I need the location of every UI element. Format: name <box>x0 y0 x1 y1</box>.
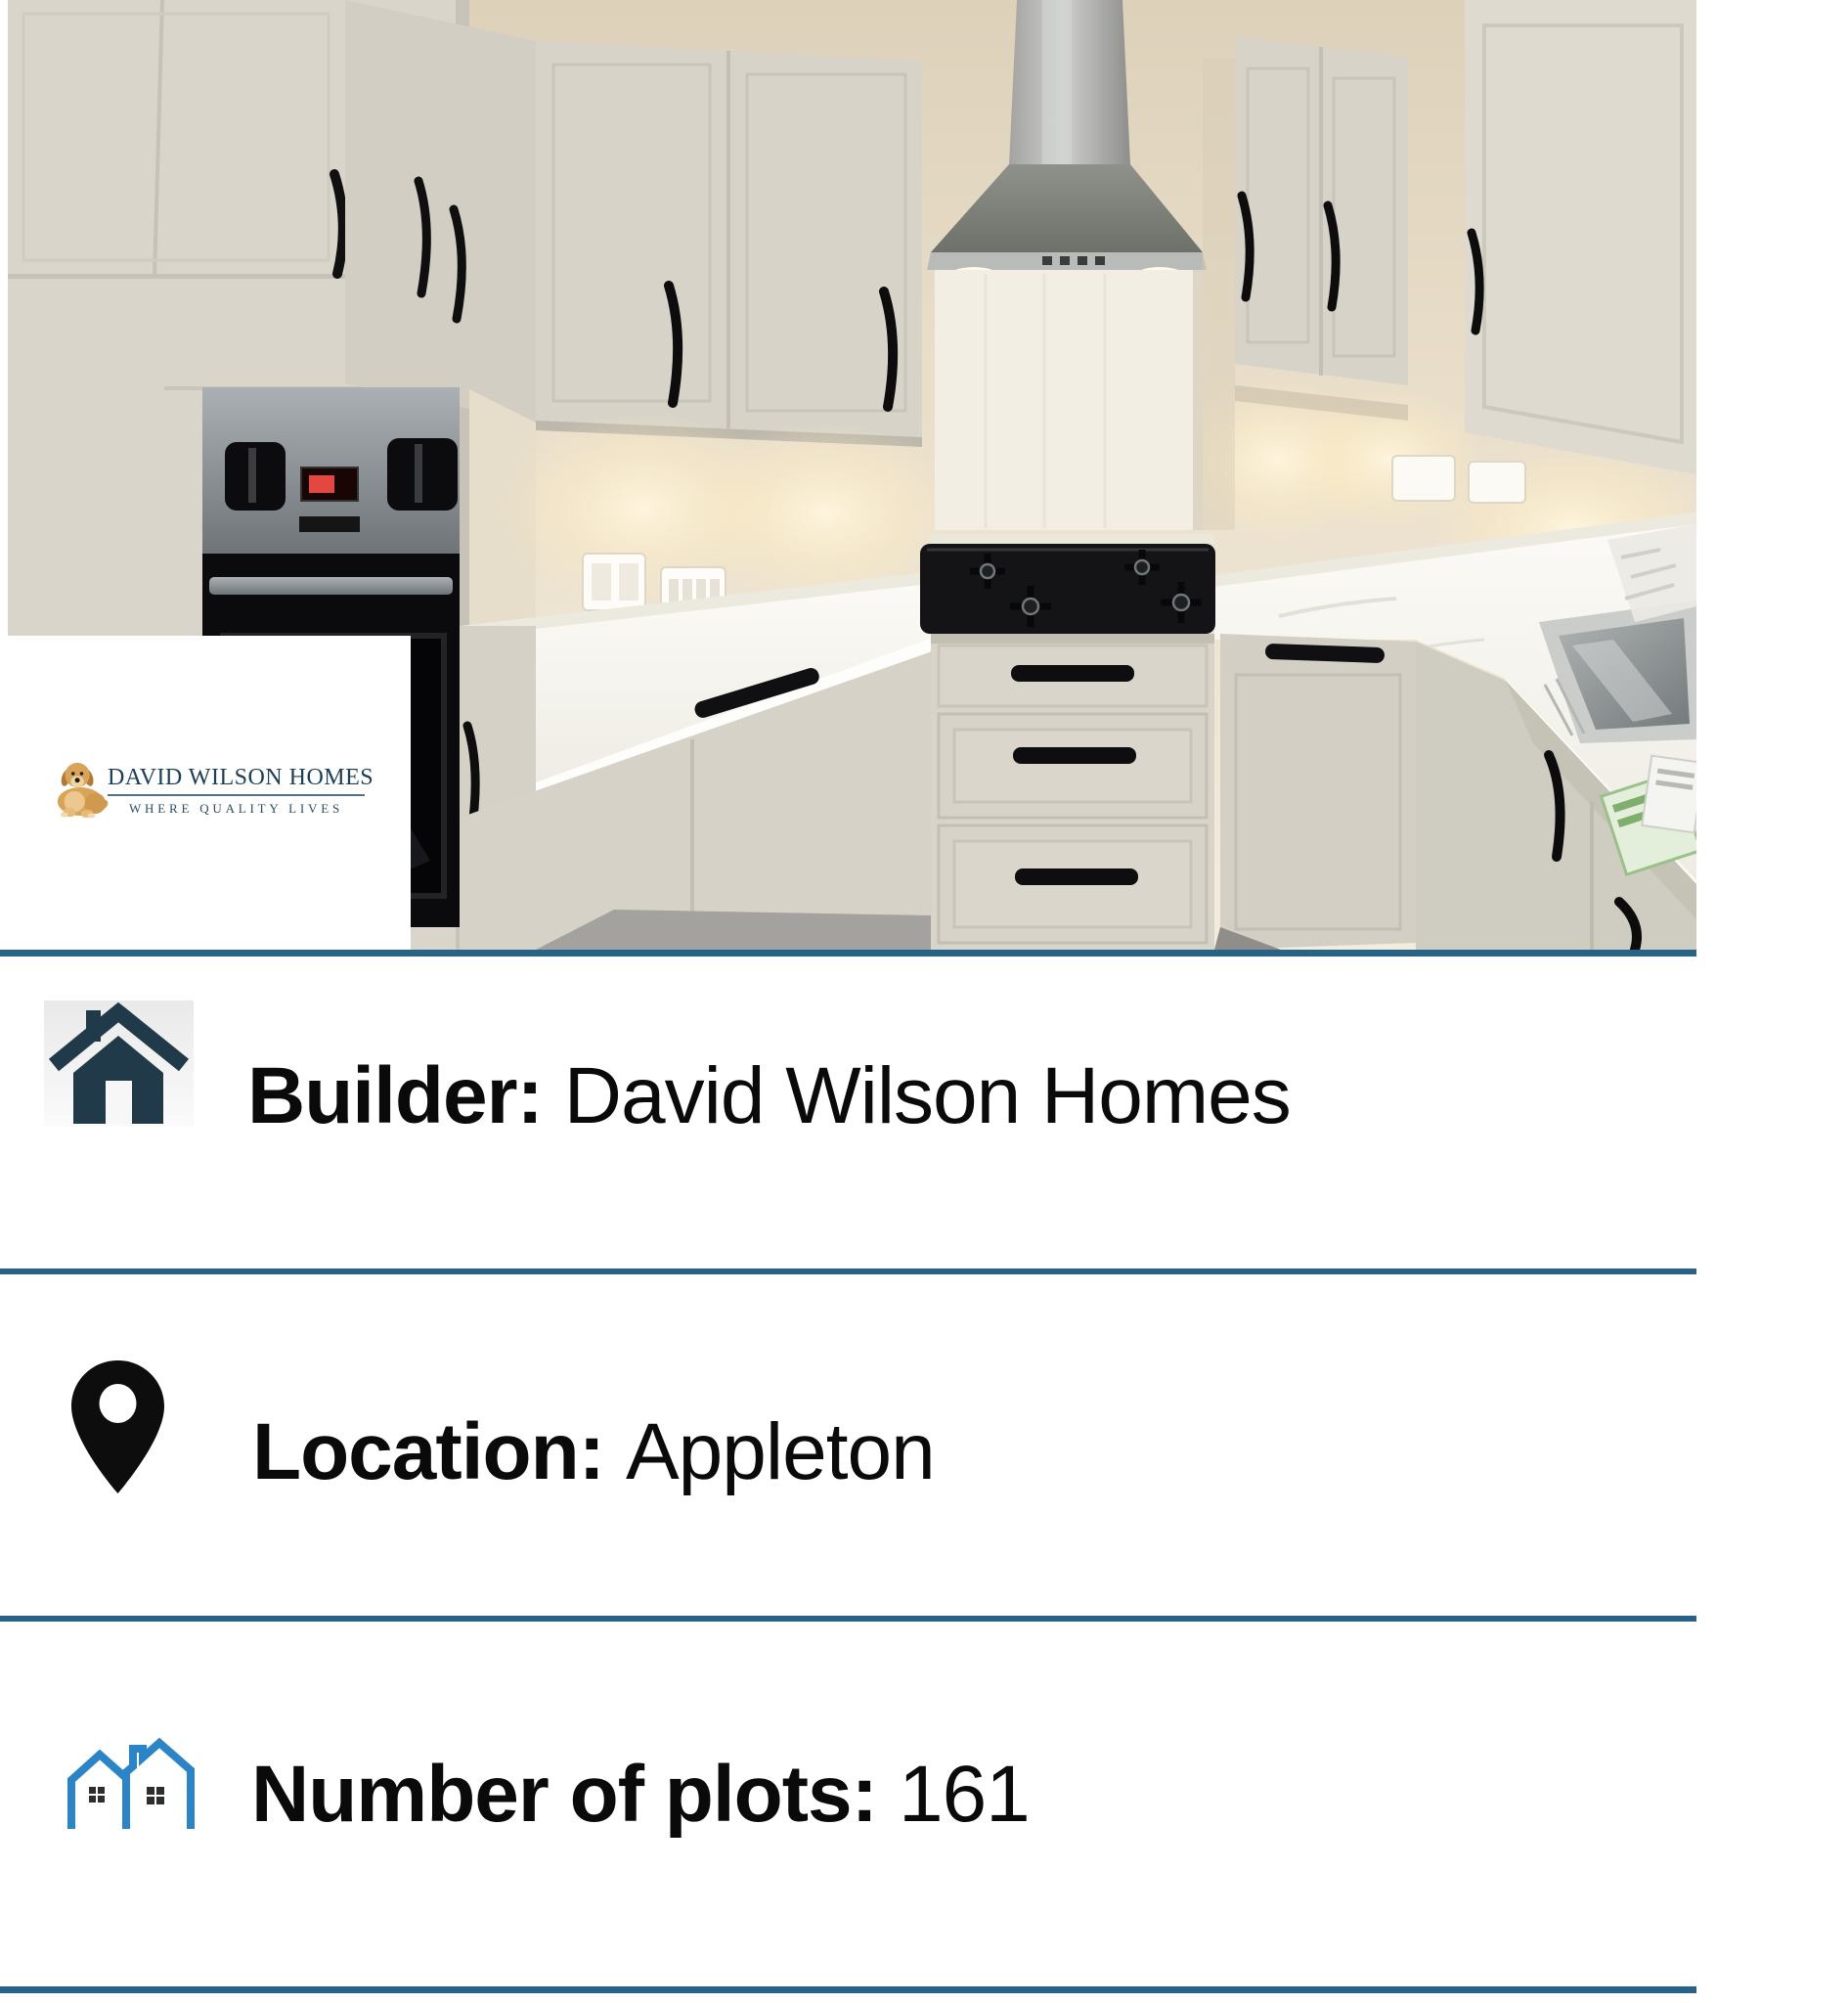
logo-brand-text: DAVID WILSON HOMES <box>108 765 370 791</box>
right-of-drawers-cabinet <box>1220 634 1416 950</box>
divider-line <box>0 1986 1696 1993</box>
right-wall-cabinets <box>1235 37 1408 421</box>
location-row: Location:Appleton <box>252 1406 935 1498</box>
plots-label: Number of plots: <box>251 1750 877 1839</box>
home-icon <box>44 1001 194 1127</box>
property-card: DAVID WILSON HOMES WHERE QUALITY LIVES B… <box>0 0 1848 2003</box>
builder-label: Builder: <box>247 1051 543 1140</box>
logo-rule <box>108 794 365 796</box>
drawer-stack <box>931 634 1214 950</box>
far-right-wall-cabinet <box>1465 0 1696 474</box>
gas-hob <box>920 544 1215 634</box>
center-wall-cabinets <box>536 41 922 447</box>
builder-row: Builder:David Wilson Homes <box>247 1050 1291 1142</box>
logo-tagline-text: WHERE QUALITY LIVES <box>108 801 365 817</box>
divider-line <box>0 950 1696 957</box>
location-value: Appleton <box>626 1407 935 1496</box>
builder-logo: DAVID WILSON HOMES WHERE QUALITY LIVES <box>5 636 411 950</box>
plots-row: Number of plots:161 <box>251 1749 1030 1841</box>
location-label: Location: <box>252 1407 604 1496</box>
builder-value: David Wilson Homes <box>564 1051 1291 1140</box>
divider-line <box>0 1616 1696 1622</box>
dog-image <box>52 753 109 822</box>
plots-value: 161 <box>899 1750 1030 1839</box>
divider-line <box>0 1269 1696 1274</box>
houses-icon <box>64 1736 203 1829</box>
location-pin-icon <box>71 1360 164 1493</box>
